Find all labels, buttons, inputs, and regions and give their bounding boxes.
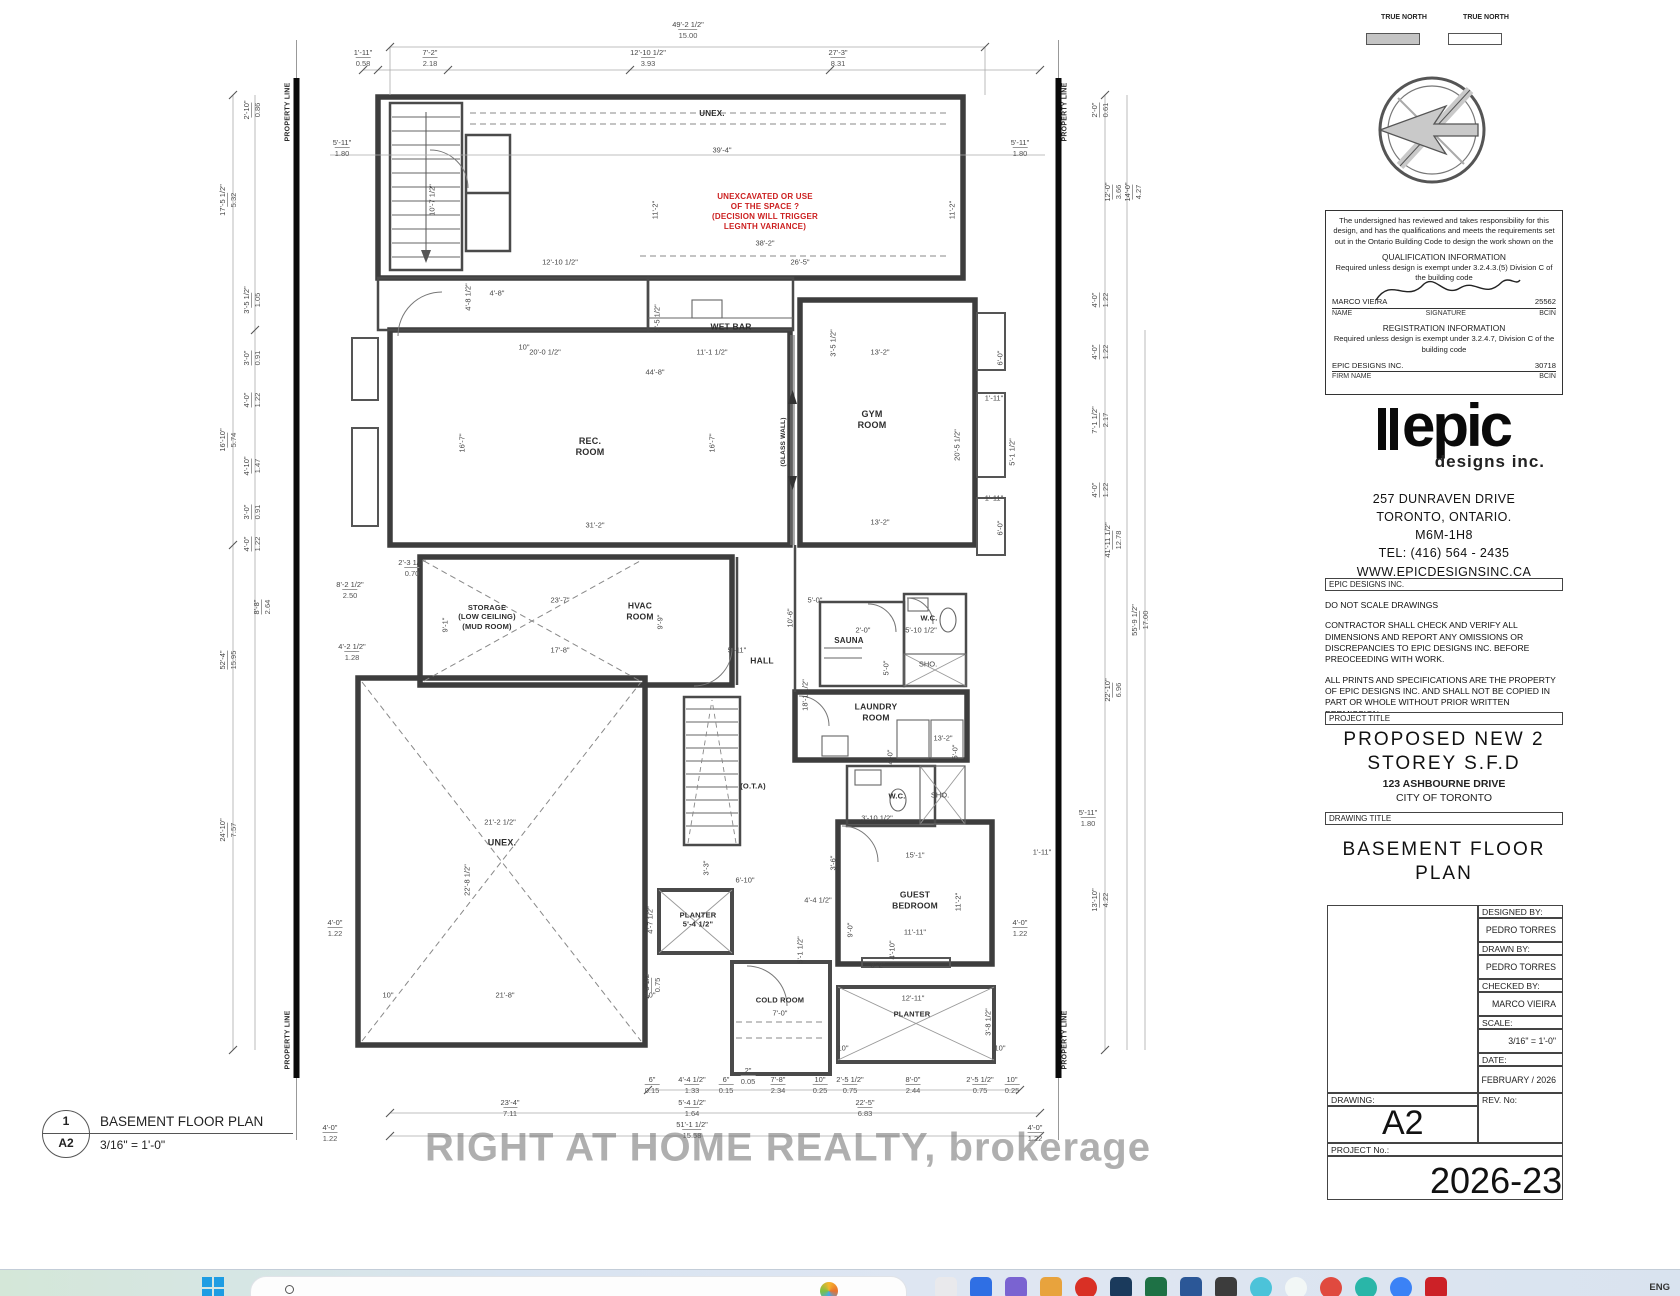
room-label-sauna: SAUNA xyxy=(834,636,863,646)
app-icon-7[interactable] xyxy=(1145,1277,1167,1296)
north-legend-filled xyxy=(1366,33,1420,45)
room-label-planter-mid: PLANTER 5'-4 1/2" xyxy=(680,911,717,930)
dimension-label: 2'-5 1/2"0.75 xyxy=(966,1075,993,1095)
dimension-label: 21'-8" xyxy=(495,991,514,1000)
dimension-label: 22'-8 1/2" xyxy=(463,864,472,896)
property-line-label: PROPERTY LINE xyxy=(285,83,294,142)
dimension-label: 38'-2" xyxy=(755,239,774,248)
dimension-label: 3'-5 1/2" xyxy=(829,329,838,356)
app-icon-11[interactable] xyxy=(1285,1277,1307,1296)
drawn-by-value: PEDRO TORRES xyxy=(1478,955,1563,979)
dimension-label: 18'-1 1/2" xyxy=(801,679,810,711)
dimension-label: 4'-4 1/2"1.33 xyxy=(678,1075,705,1095)
dimension-label: 7'-2"2.18 xyxy=(423,48,438,68)
dimension-label: 2'-5 1/2"0.75 xyxy=(836,1075,863,1095)
dimension-label: 3'-6" xyxy=(829,856,838,871)
drawing-title: BASEMENT FLOOR PLAN xyxy=(1325,838,1563,886)
drawing-title-header: DRAWING TITLE xyxy=(1325,812,1563,825)
dimension-label: 2"0.05 xyxy=(741,1066,756,1086)
property-line-label: PROPERTY LINE xyxy=(285,1011,294,1070)
firm-bcin: 30718 xyxy=(1535,361,1556,371)
callout-number: 1 xyxy=(42,1114,90,1128)
dimension-label: 4'-0"1.22 xyxy=(242,537,262,552)
dimension-label: 2'-0" xyxy=(856,626,871,635)
dimension-label: 24'-10"7.57 xyxy=(218,818,238,841)
dimension-label: 4'-10"1.47 xyxy=(242,456,262,475)
taskbar[interactable]: ENG xyxy=(0,1269,1680,1296)
qualification-box: The undersigned has reviewed and takes r… xyxy=(1325,210,1563,395)
dimension-label: 20'-5 1/2" xyxy=(953,429,962,461)
designed-by-label: DESIGNED BY: xyxy=(1478,905,1563,918)
dimension-label: 5'-0" xyxy=(808,596,823,605)
dimension-label: SHO. xyxy=(919,660,937,669)
dimension-label: 5'-11"1.80 xyxy=(1011,138,1030,158)
firm-name: EPIC DESIGNS INC. xyxy=(1332,361,1403,371)
qualification-intro: The undersigned has reviewed and takes r… xyxy=(1332,216,1556,247)
dimension-label: 2'-0"0.61 xyxy=(1090,103,1110,118)
name-label: NAME xyxy=(1332,309,1352,318)
dimension-label: 5'-0" xyxy=(882,661,891,676)
company-postal: M6M-1H8 xyxy=(1325,526,1563,544)
dimension-label: 11'-2" xyxy=(954,893,963,912)
signature-scribble xyxy=(1372,272,1522,306)
dimension-label: 3'-10 1/2" xyxy=(861,814,893,823)
dimension-label: 13'-2" xyxy=(870,348,889,357)
dimension-label: 16'-7" xyxy=(708,433,717,452)
app-icon-1[interactable] xyxy=(935,1277,957,1296)
date-value: FEBRUARY / 2026 xyxy=(1478,1066,1563,1093)
dimension-label: 1'-11" xyxy=(985,394,1004,403)
dimension-label: 20'-0 1/2" xyxy=(529,348,561,357)
dimension-label: 3'-0"0.91 xyxy=(242,351,262,366)
dimension-label: 13'-10"4.22 xyxy=(1090,888,1110,911)
dimension-label: 17'-5 1/2"5.32 xyxy=(218,184,238,216)
dimension-label: 4'-10" xyxy=(888,940,897,959)
dimension-label: 5'-11"1.80 xyxy=(1079,808,1098,828)
bing-icon xyxy=(820,1282,838,1296)
true-north-label-left: TRUE NORTH xyxy=(1374,14,1434,22)
dimension-label: 4'-7 1/2" xyxy=(646,906,655,933)
dimension-label: 22'-10"6.96 xyxy=(1103,678,1123,701)
room-label-hall: HALL xyxy=(750,656,773,667)
dimension-label: 6"0.15 xyxy=(719,1075,734,1095)
dimension-label: 7'-8"2.34 xyxy=(771,1075,786,1095)
dimension-label: 4'-0"1.22 xyxy=(242,393,262,408)
dimension-label: 13'-2" xyxy=(870,518,889,527)
company-tel: TEL: (416) 564 - 2435 xyxy=(1325,544,1563,562)
dimension-label: 11'-2" xyxy=(651,201,660,220)
dimension-label: 5'-1 1/2" xyxy=(796,936,805,963)
dimension-label: 4'-0"1.22 xyxy=(328,918,343,938)
app-icon-8[interactable] xyxy=(1180,1277,1202,1296)
dimension-label: 6'-0" xyxy=(996,351,1005,366)
rev-no-label: REV. No: xyxy=(1478,1093,1563,1143)
dimension-label: 12'-11" xyxy=(902,994,925,1003)
dimension-label: 12'-10 1/2" xyxy=(542,258,578,267)
dimension-label: 10" xyxy=(837,1044,848,1053)
room-label-wc-1: W.C. xyxy=(920,613,937,622)
dimension-label: 9'-0" xyxy=(846,923,855,938)
dimension-label: 8'-8"2.64 xyxy=(252,600,272,615)
dimension-label: 27'-3"8.31 xyxy=(828,48,847,68)
room-label-cold-room: COLD ROOM xyxy=(756,995,804,1004)
dimension-label: 4'-8 1/2" xyxy=(464,283,473,310)
project-title-header: PROJECT TITLE xyxy=(1325,712,1563,725)
dimension-label: 4'-0"1.22 xyxy=(1090,483,1110,498)
dimension-label: 2'-10"0.86 xyxy=(242,100,262,119)
dimension-label: 31'-2" xyxy=(585,521,604,530)
search-bar[interactable] xyxy=(250,1276,907,1296)
dimension-label: 22'-5"6.83 xyxy=(855,1098,874,1118)
dimension-label: 2'-5 1/2"0.75 xyxy=(642,971,662,998)
note-contractor: CONTRACTOR SHALL CHECK AND VERIFY ALL DI… xyxy=(1325,620,1563,665)
signature-label: SIGNATURE xyxy=(1426,309,1466,318)
room-label-wc-2: W.C. xyxy=(888,791,905,800)
dimension-label: 4'-0"1.22 xyxy=(1013,918,1028,938)
company-logo: epic designs inc. xyxy=(1325,402,1563,472)
dimension-label: 9'-1" xyxy=(441,618,450,633)
dimension-label: 1'-11" xyxy=(985,494,1004,503)
unexcavated-note: UNEXCAVATED OR USE OF THE SPACE ? (DECIS… xyxy=(712,192,818,232)
note-do-not-scale: DO NOT SCALE DRAWINGS xyxy=(1325,600,1563,611)
dimension-label: 17'-8" xyxy=(550,646,569,655)
project-no-label: PROJECT No.: xyxy=(1327,1143,1563,1156)
dimension-label: 41'-11 1/2"12.78 xyxy=(1103,522,1123,557)
dimension-label: 4'-8" xyxy=(490,289,505,298)
dimension-label: 5'-11"1.80 xyxy=(333,138,352,158)
dimension-label: 12'-0"3.66 xyxy=(1103,182,1123,201)
firm-name-label: FIRM NAME xyxy=(1332,372,1371,381)
logo-text: epic xyxy=(1402,402,1510,450)
pinned-apps xyxy=(935,1277,1447,1296)
checked-by-value: MARCO VIEIRA xyxy=(1478,992,1563,1016)
sheet-canvas: PROPERTY LINEPROPERTY LINEPROPERTY LINEP… xyxy=(0,0,1680,1296)
registration-requirement: Required unless design is exempt under 3… xyxy=(1332,334,1556,355)
dimension-label: 1'-11" xyxy=(1033,848,1052,857)
scale-value: 3/16" = 1'-0" xyxy=(1478,1029,1563,1053)
dimension-label: 26'-5" xyxy=(790,258,809,267)
dimension-label: 3'-2" xyxy=(871,961,886,970)
dimension-label: 5'-4 1/2"1.64 xyxy=(678,1098,705,1118)
revision-box xyxy=(1327,905,1478,1093)
app-icon-6[interactable] xyxy=(1110,1277,1132,1296)
general-notes: DO NOT SCALE DRAWINGS CONTRACTOR SHALL C… xyxy=(1325,600,1563,729)
dimension-label: 10'-6" xyxy=(786,608,795,627)
checked-by-label: CHECKED BY: xyxy=(1478,979,1563,992)
dimension-label: 9'-9" xyxy=(656,615,665,630)
drawn-by-label: DRAWN BY: xyxy=(1478,942,1563,955)
dimension-label: 3'-5 1/2"1.05 xyxy=(242,286,262,313)
logo-bars-icon xyxy=(1378,408,1398,450)
designer-bcin: 25562 xyxy=(1535,297,1556,307)
dimension-label: 23'-7" xyxy=(550,596,569,605)
dimension-label: 8'-2 1/2"2.50 xyxy=(336,580,363,600)
language-indicator[interactable]: ENG xyxy=(1649,1282,1670,1293)
logo-subtext: designs inc. xyxy=(1325,452,1563,472)
dimension-label: 5'-0" xyxy=(951,745,960,760)
room-label-ota: (O.T.A) xyxy=(740,781,766,790)
dimension-label: 44'-8" xyxy=(645,368,664,377)
app-icon-13[interactable] xyxy=(1355,1277,1377,1296)
north-legend-open xyxy=(1448,33,1502,45)
dimension-label: 3'-0"0.91 xyxy=(242,505,262,520)
dimension-label: 5'-1 1/2" xyxy=(1008,438,1017,465)
dimension-label: 39'-4" xyxy=(712,146,731,155)
room-label-gym-room: GYM ROOM xyxy=(858,409,887,432)
dimension-label: 6'-10" xyxy=(735,876,754,885)
scale-label: SCALE: xyxy=(1478,1016,1563,1029)
dimension-label: 4'-4 1/2" xyxy=(804,896,831,905)
app-icon-3[interactable] xyxy=(1005,1277,1027,1296)
callout-line xyxy=(43,1133,293,1134)
dimension-label: 52'-4"15.95 xyxy=(218,650,238,669)
dimension-label: 10" xyxy=(382,991,393,1000)
dimension-label: 4'-0"1.22 xyxy=(1090,293,1110,308)
dimension-label: 6'-0" xyxy=(996,521,1005,536)
dimension-label: 1'-11"0.58 xyxy=(354,48,373,68)
dimension-label: 3'-8 1/2" xyxy=(984,1008,993,1035)
windows-start-button[interactable] xyxy=(202,1277,224,1296)
dimension-label: 13'-2" xyxy=(933,734,952,743)
app-icon-12[interactable] xyxy=(1320,1277,1342,1296)
dimension-label: 10"0.25 xyxy=(813,1075,828,1095)
dimension-label: SHO. xyxy=(931,791,949,800)
dimension-label: 3'-5 1/2" xyxy=(653,304,662,331)
app-icon-10[interactable] xyxy=(1250,1277,1272,1296)
dimension-label: 49'-2 1/2"15.00 xyxy=(672,20,704,40)
dimension-label: 10" xyxy=(994,1044,1005,1053)
project-number: 2026-23 xyxy=(1430,1160,1562,1202)
room-label-laundry: LAUNDRY ROOM xyxy=(855,701,898,722)
firm-bcin-label: BCIN xyxy=(1539,372,1556,381)
view-callout: 1 A2 BASEMENT FLOOR PLAN 3/16" = 1'-0" xyxy=(42,1108,302,1168)
dimension-label: 4'-2 1/2"1.28 xyxy=(338,642,365,662)
notes-header: EPIC DESIGNS INC. xyxy=(1325,578,1563,591)
realty-watermark: RIGHT AT HOME REALTY, brokerage xyxy=(425,1126,1151,1171)
north-arrow-icon xyxy=(1380,78,1484,182)
company-address2: TORONTO, ONTARIO. xyxy=(1325,508,1563,526)
room-label-rec-room: REC. ROOM xyxy=(576,436,605,459)
room-label-storage: STORAGE (LOW CEILING) (MUD ROOM) xyxy=(458,603,516,631)
dimension-label: 6"0.15 xyxy=(645,1075,660,1095)
dimension-label: 4'-0"1.22 xyxy=(323,1123,338,1143)
company-address1: 257 DUNRAVEN DRIVE xyxy=(1325,490,1563,508)
dimension-label: 5'-10 1/2" xyxy=(905,626,937,635)
company-address-block: 257 DUNRAVEN DRIVE TORONTO, ONTARIO. M6M… xyxy=(1325,490,1563,581)
project-address: 123 ASHBOURNE DRIVE xyxy=(1325,778,1563,790)
room-label-wet-bar: WET BAR xyxy=(710,322,751,333)
project-title: PROPOSED NEW 2 STOREY S.F.D xyxy=(1325,728,1563,776)
dimension-label: 16'-10"5.74 xyxy=(218,428,238,451)
date-label: DATE: xyxy=(1478,1053,1563,1066)
app-icon-14[interactable] xyxy=(1390,1277,1412,1296)
dimension-label: 55'-9 1/2"17.00 xyxy=(1130,604,1150,636)
dimension-label: 23'-4"7.11 xyxy=(500,1098,519,1118)
room-label-hvac: HVAC ROOM xyxy=(626,600,653,621)
dimension-label: 11'-11" xyxy=(904,928,926,937)
dimension-label: 5'-11" xyxy=(728,646,747,655)
room-label-unex-main: UNEX. xyxy=(488,837,517,848)
dimension-label: 4'-0" xyxy=(886,750,895,765)
designed-by-value: PEDRO TORRES xyxy=(1478,918,1563,942)
drawing-number: A2 xyxy=(1382,1104,1424,1143)
callout-title: BASEMENT FLOOR PLAN xyxy=(100,1114,263,1129)
app-icon-2[interactable] xyxy=(970,1277,992,1296)
room-label-unex-top: UNEX. xyxy=(699,109,724,119)
property-line-label: PROPERTY LINE xyxy=(1062,1011,1071,1070)
bcin-label: BCIN xyxy=(1539,309,1556,318)
dimension-label: 3'-3" xyxy=(702,861,711,876)
qualification-header: QUALIFICATION INFORMATION xyxy=(1332,252,1556,263)
dimension-label: 7'-1 1/2"2.17 xyxy=(1090,406,1110,433)
dimension-label: 10" xyxy=(518,343,529,352)
app-icon-5[interactable] xyxy=(1075,1277,1097,1296)
callout-scale: 3/16" = 1'-0" xyxy=(100,1138,165,1152)
dimension-label: 14'-0"4.27 xyxy=(1123,182,1143,201)
search-icon xyxy=(285,1285,294,1294)
dimension-label: 7'-0" xyxy=(773,1009,788,1018)
app-icon-4[interactable] xyxy=(1040,1277,1062,1296)
app-icon-15[interactable] xyxy=(1425,1277,1447,1296)
room-label-guest-bedroom: GUEST BEDROOM xyxy=(892,889,938,910)
callout-sheet: A2 xyxy=(42,1136,90,1150)
dimension-label: 15'-1" xyxy=(905,851,924,860)
app-icon-9[interactable] xyxy=(1215,1277,1237,1296)
glass-wall-note: (GLASS WALL) xyxy=(780,417,788,466)
true-north-label-right: TRUE NORTH xyxy=(1456,14,1516,22)
dimension-label: 10'-7 1/2" xyxy=(428,184,437,216)
dimension-label: 8'-0"2.44 xyxy=(906,1075,921,1095)
dimension-label: 12'-10 1/2"3.93 xyxy=(630,48,666,68)
dimension-label: 11'-2" xyxy=(948,201,957,220)
registration-header: REGISTRATION INFORMATION xyxy=(1332,323,1556,334)
property-line-label: PROPERTY LINE xyxy=(1062,83,1071,142)
project-city: CITY OF TORONTO xyxy=(1325,792,1563,804)
dimension-label: 16'-7" xyxy=(458,433,467,452)
dimension-label: 11'-1 1/2" xyxy=(696,348,727,357)
dimension-label: 10"0.25 xyxy=(1005,1075,1020,1095)
room-label-planter-bottom: PLANTER xyxy=(894,1009,931,1018)
dimension-label: 21'-2 1/2" xyxy=(484,818,516,827)
dimension-label: 2'-3 1/2"0.70 xyxy=(398,558,425,578)
dimension-label: 4'-0"1.22 xyxy=(1090,345,1110,360)
